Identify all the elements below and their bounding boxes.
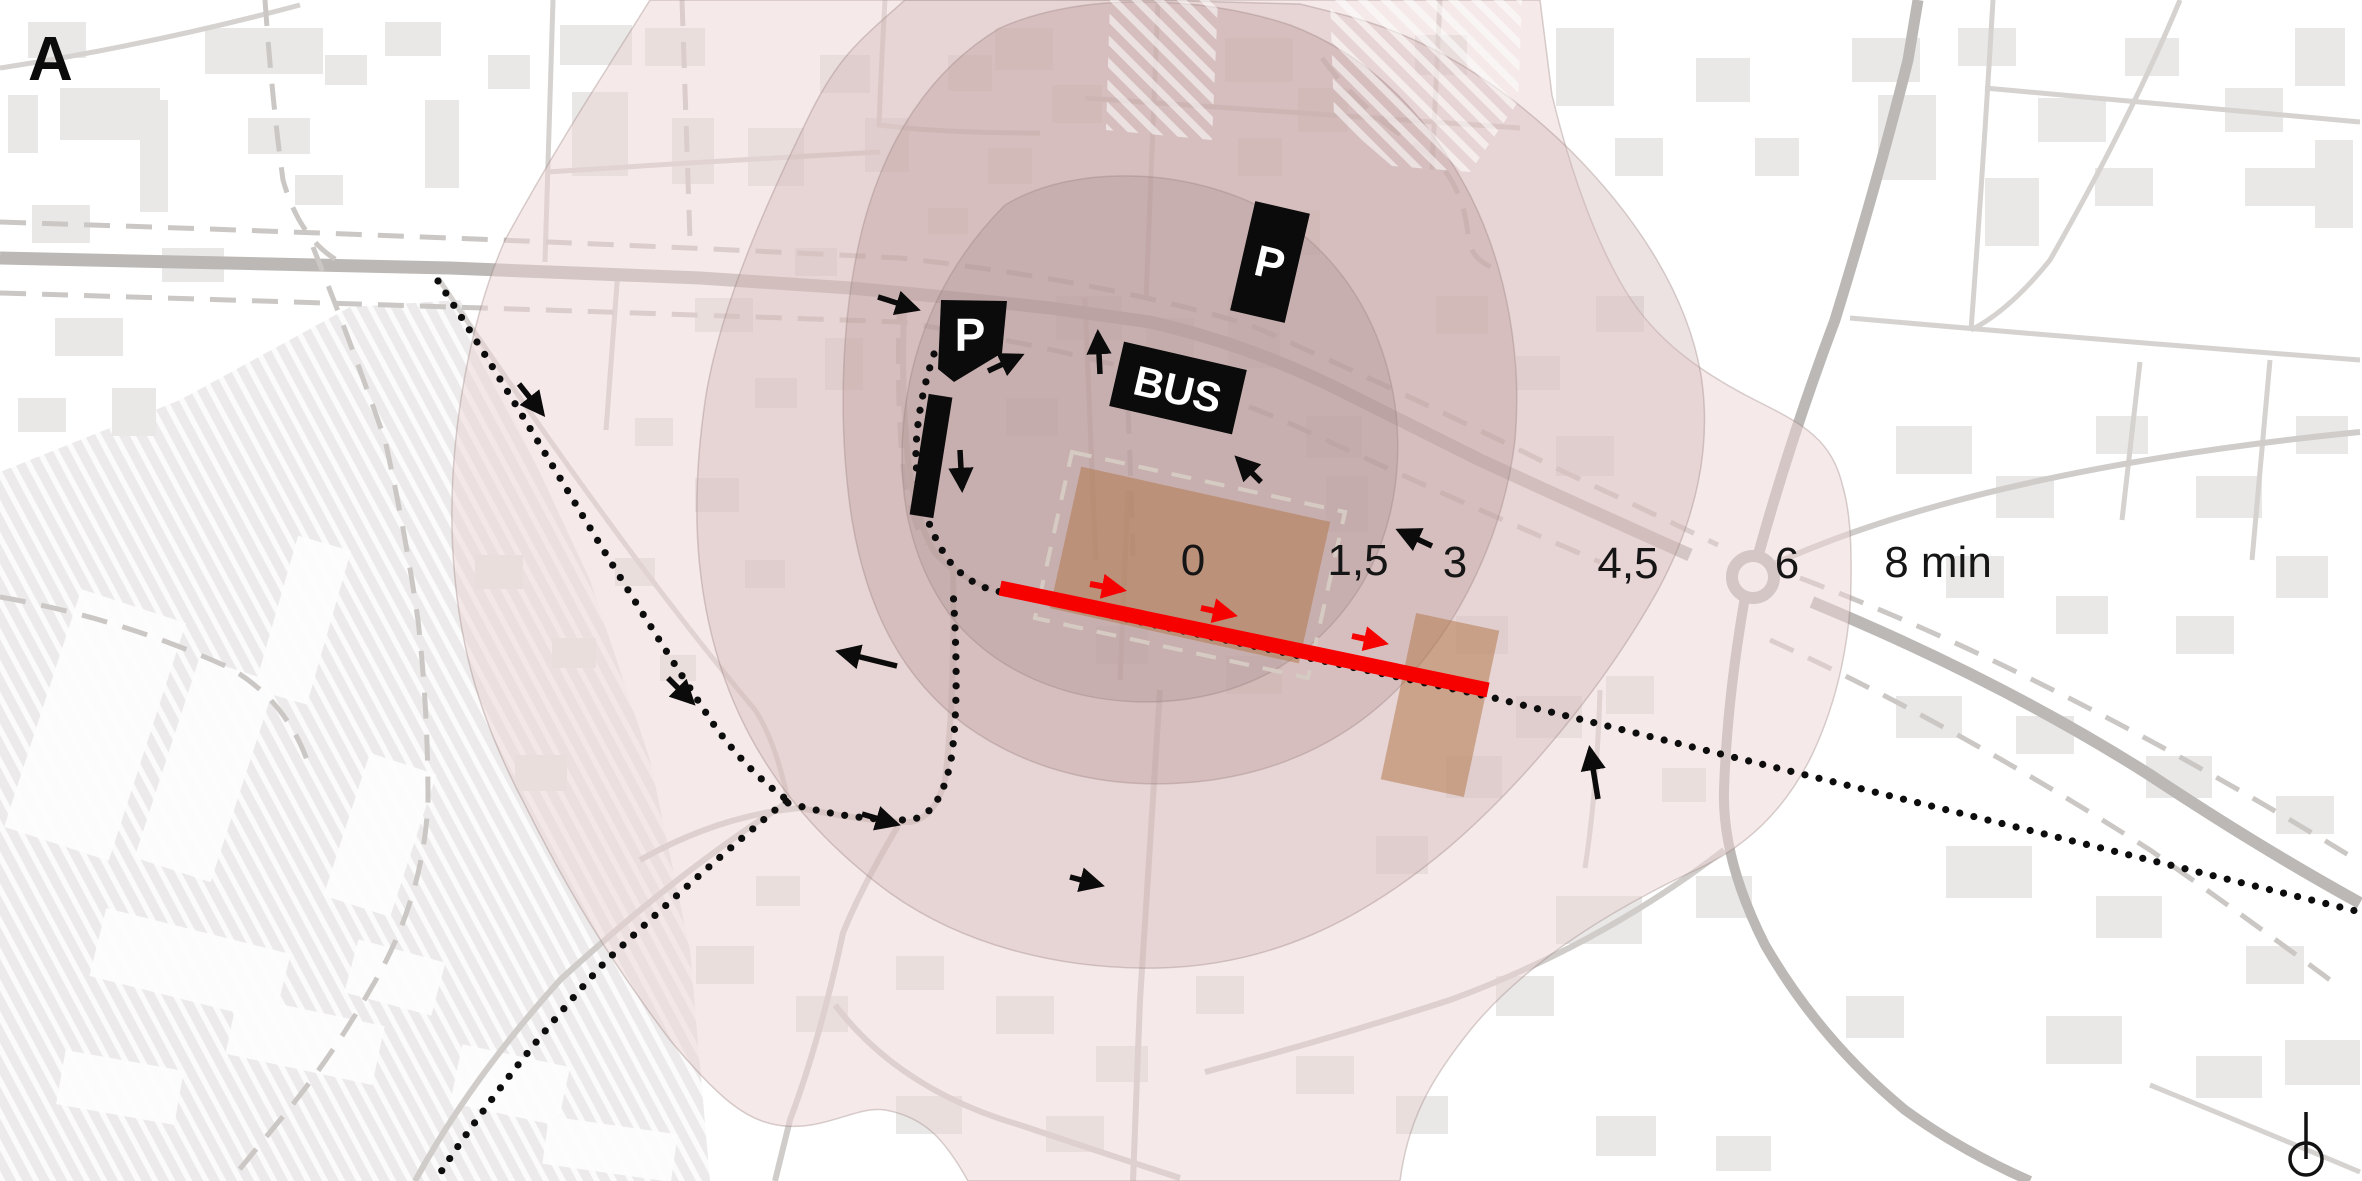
parking-west-label: P (955, 309, 986, 361)
walk-time-8min: 8 min (1884, 538, 1992, 587)
map-canvas: P P BUS 0 1,5 3 4,5 6 8 min A (0, 0, 2362, 1181)
walk-time-1-5: 1,5 (1327, 536, 1388, 585)
walk-time-3: 3 (1443, 538, 1467, 587)
plan-variant-label: A (28, 25, 73, 94)
isochrone-map-panel: P P BUS 0 1,5 3 4,5 6 8 min A (0, 0, 2362, 1181)
walk-time-6: 6 (1775, 539, 1799, 588)
walk-time-4-5: 4,5 (1597, 539, 1658, 588)
walk-time-0: 0 (1181, 536, 1205, 585)
